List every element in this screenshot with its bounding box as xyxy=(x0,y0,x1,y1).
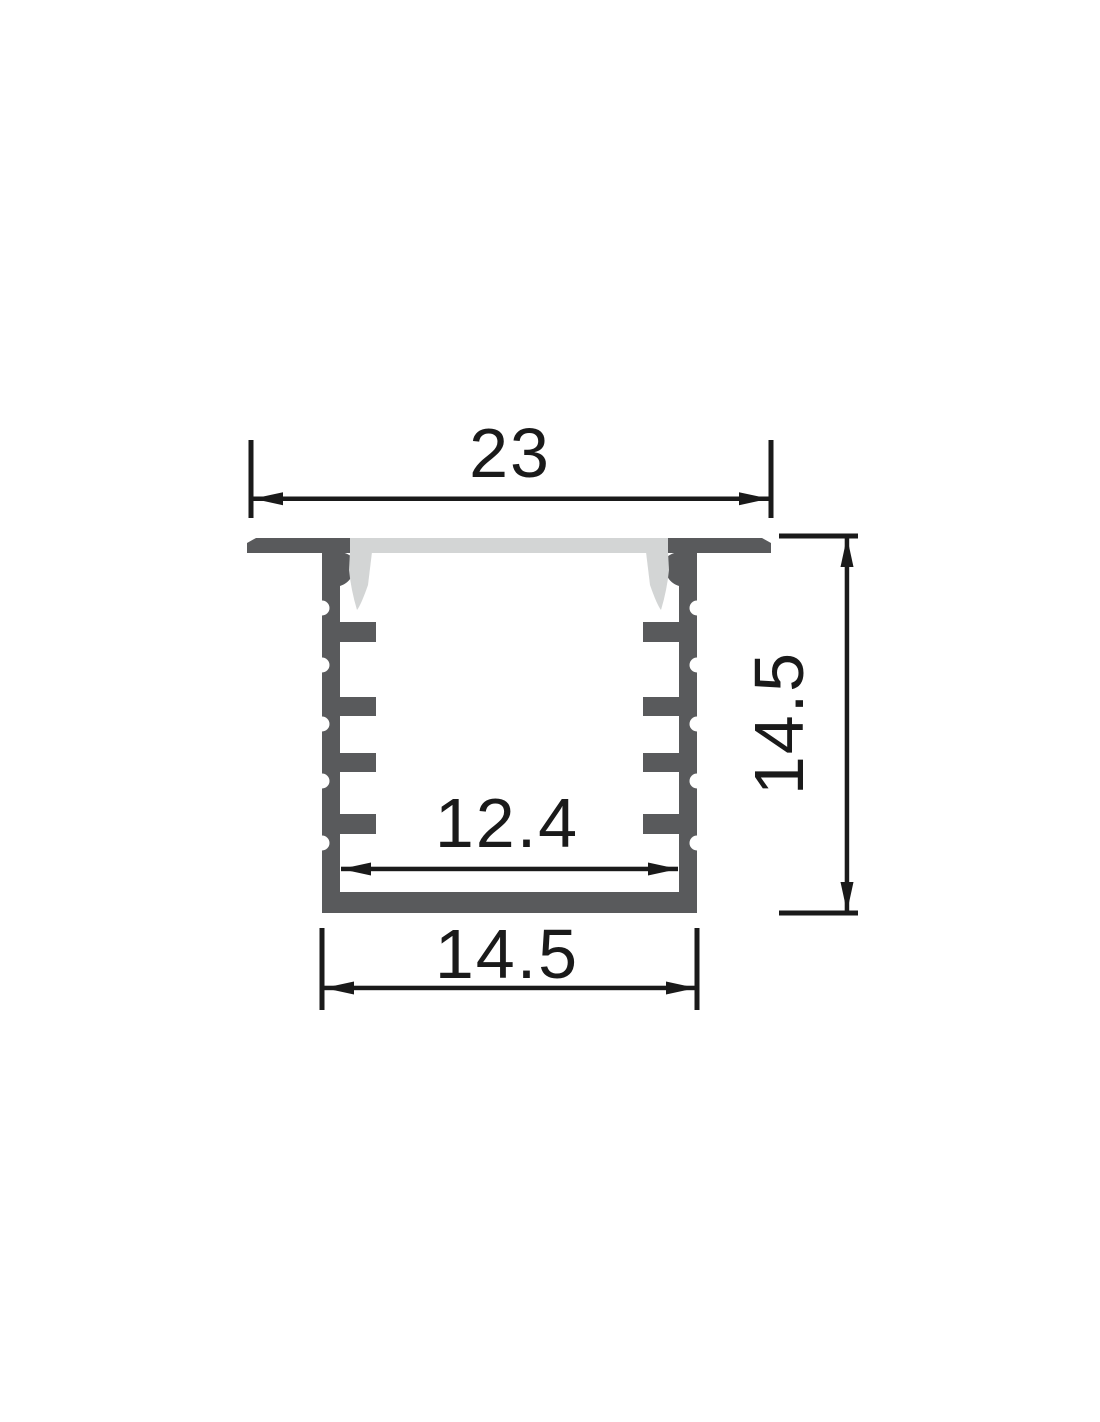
rib xyxy=(643,622,679,642)
dimension-line xyxy=(341,867,678,872)
notch xyxy=(690,774,705,789)
drawing-canvas: 23 14.5 12.4 xyxy=(0,0,1100,1422)
rib xyxy=(643,753,679,772)
dimension-line xyxy=(845,536,850,913)
rib xyxy=(340,697,376,716)
extension-line xyxy=(249,440,254,518)
notch xyxy=(315,717,330,732)
notch xyxy=(315,658,330,673)
arrowhead xyxy=(324,982,354,995)
bottom-floor xyxy=(322,892,697,913)
extension-line xyxy=(695,928,700,1010)
arrowhead xyxy=(666,982,696,995)
arrowhead xyxy=(841,882,854,912)
notch xyxy=(315,774,330,789)
diffuser xyxy=(349,538,669,610)
arrowhead xyxy=(341,863,371,876)
notch xyxy=(690,717,705,732)
notch xyxy=(315,601,330,616)
inner-width-dimension: 12.4 xyxy=(341,784,678,876)
arrowhead xyxy=(253,492,283,505)
notch xyxy=(690,836,705,851)
inner-width-label: 12.4 xyxy=(435,784,579,862)
extension-line xyxy=(320,928,325,1010)
notch xyxy=(690,601,705,616)
height-label: 14.5 xyxy=(740,651,818,795)
rib xyxy=(340,814,376,834)
profile-drawing: 23 14.5 12.4 xyxy=(0,0,1100,1422)
dimension-line xyxy=(251,497,771,502)
extension-line xyxy=(769,440,774,518)
arrowhead xyxy=(841,537,854,567)
diffuser-right-wing xyxy=(646,552,669,610)
arrowhead xyxy=(648,863,678,876)
notch xyxy=(690,658,705,673)
arrowhead xyxy=(739,492,769,505)
body-width-label: 14.5 xyxy=(435,915,579,993)
body-width-dimension: 14.5 xyxy=(320,915,700,1010)
rib xyxy=(643,697,679,716)
top-width-dimension: 23 xyxy=(249,414,774,518)
diffuser-left-wing xyxy=(349,552,372,610)
rib xyxy=(340,622,376,642)
height-dimension: 14.5 xyxy=(740,534,858,916)
rib xyxy=(340,753,376,772)
diffuser-plate xyxy=(350,538,668,553)
notch xyxy=(315,836,330,851)
top-width-label: 23 xyxy=(469,414,551,492)
rib xyxy=(643,814,679,834)
